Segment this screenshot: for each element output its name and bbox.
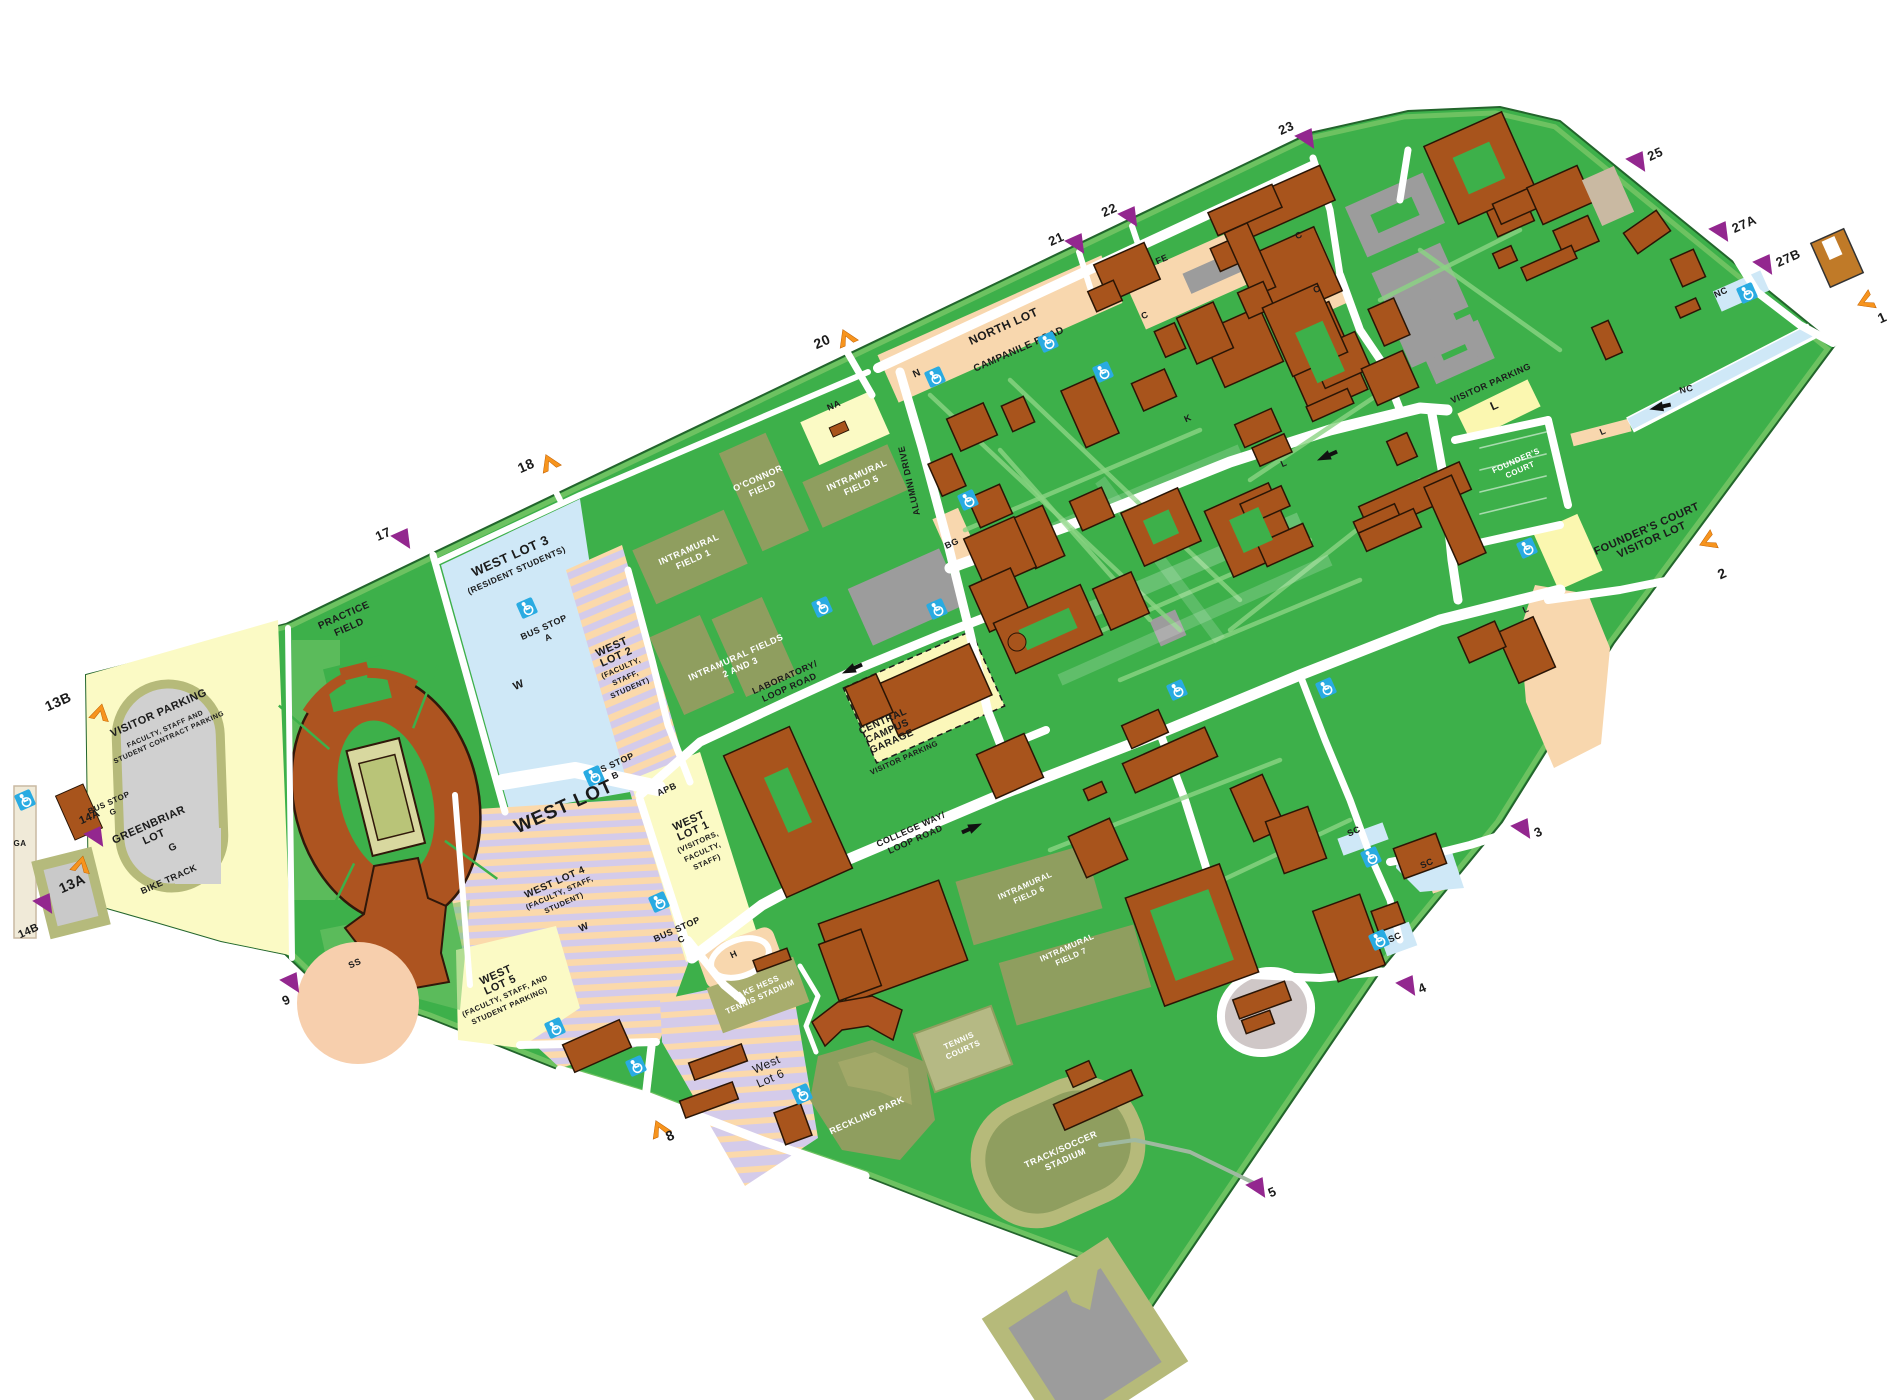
svg-text:GA: GA [14,839,27,848]
